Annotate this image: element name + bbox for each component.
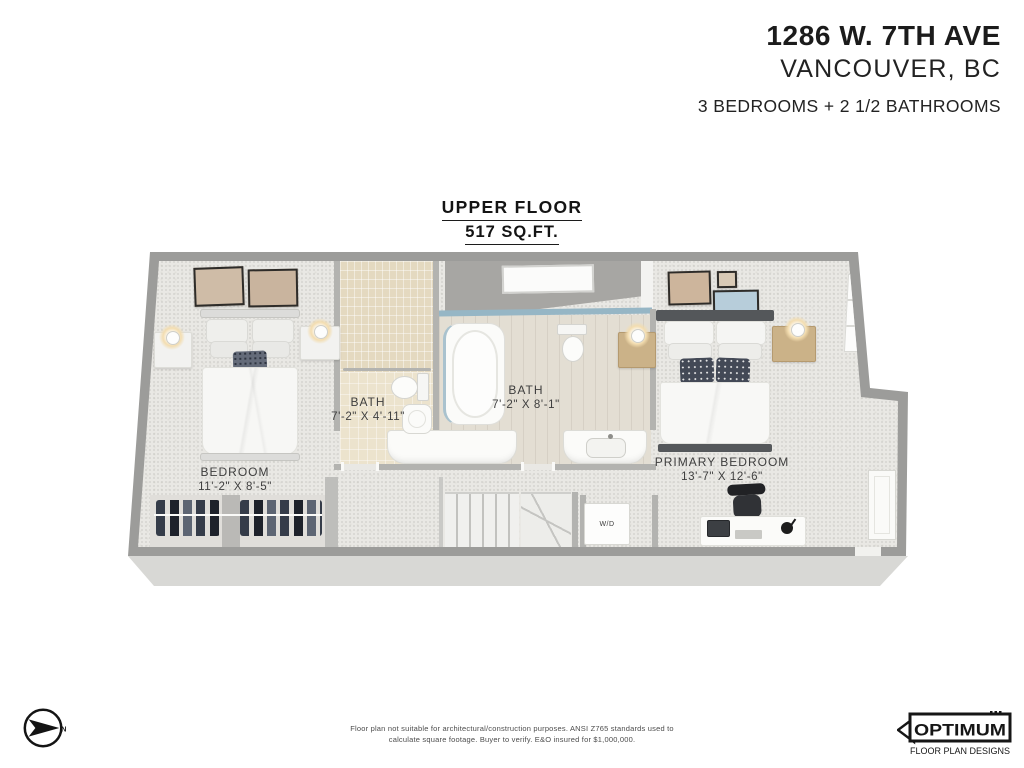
stair-railing bbox=[439, 477, 443, 547]
sink-vanity bbox=[563, 430, 647, 464]
sink-basin bbox=[586, 438, 626, 458]
wall-art-frame bbox=[248, 269, 299, 308]
floor-title: UPPER FLOOR 517 SQ.FT. bbox=[0, 197, 1024, 245]
desk bbox=[700, 516, 806, 546]
door-jamb bbox=[341, 462, 344, 471]
pillow bbox=[716, 321, 766, 345]
floor-plan: W/D BEDROOM 11'-2" X 8'-5" BATH 7'-2" X … bbox=[128, 252, 908, 586]
bed bbox=[656, 310, 774, 452]
door bbox=[868, 470, 896, 540]
footboard bbox=[200, 453, 300, 461]
optimum-logo: OPTIMUM FLOOR PLAN DESIGNS bbox=[897, 711, 1013, 757]
wall-segment bbox=[641, 261, 653, 312]
table-lamp bbox=[159, 324, 185, 350]
address-city: VANCOUVER, BC bbox=[698, 55, 1001, 84]
headboard bbox=[656, 310, 774, 321]
wall-segment bbox=[334, 464, 656, 470]
staircase-winder bbox=[521, 492, 571, 547]
beds-baths-summary: 3 BEDROOMS + 2 1/2 BATHROOMS bbox=[698, 96, 1001, 117]
wall-art-frame bbox=[193, 266, 244, 307]
skylight-window bbox=[502, 264, 594, 294]
bathroom-counter bbox=[387, 430, 517, 464]
washer-dryer-label: W/D bbox=[599, 521, 614, 528]
listing-header: 1286 W. 7TH AVE VANCOUVER, BC 3 BEDROOMS… bbox=[698, 20, 1001, 117]
footboard bbox=[658, 444, 772, 452]
toilet bbox=[562, 336, 584, 362]
door-jamb bbox=[552, 462, 555, 471]
bathtub-basin bbox=[452, 330, 498, 418]
sink-basin bbox=[408, 410, 426, 428]
wall-segment bbox=[652, 495, 658, 547]
wall-segment bbox=[433, 261, 439, 431]
accent-pillow bbox=[680, 357, 715, 383]
desk-lamp bbox=[781, 522, 793, 534]
wall-art-frame bbox=[717, 271, 737, 288]
duvet bbox=[660, 382, 770, 444]
pedestal-sink bbox=[402, 404, 432, 434]
room-label-primary-bedroom: PRIMARY BEDROOM 13'-7" X 12'-6" bbox=[655, 455, 790, 483]
table-lamp bbox=[784, 316, 810, 342]
closet-rod bbox=[154, 514, 322, 516]
room-label-bedroom: BEDROOM 11'-2" X 8'-5" bbox=[198, 465, 272, 493]
room-label-bath-main: BATH 7'-2" X 8'-1" bbox=[492, 383, 560, 411]
stair-divider-wall bbox=[572, 492, 578, 547]
pillow bbox=[206, 319, 248, 343]
shower-bar bbox=[343, 368, 431, 371]
disclaimer-text: Floor plan not suitable for architectura… bbox=[0, 723, 1024, 746]
floor-plan-page: 1286 W. 7TH AVE VANCOUVER, BC 3 BEDROOMS… bbox=[0, 0, 1024, 768]
door-jamb bbox=[521, 462, 524, 471]
monitor bbox=[707, 520, 730, 537]
table-lamp bbox=[307, 318, 333, 344]
toilet-tank bbox=[557, 324, 587, 335]
hanging-clothes bbox=[156, 500, 220, 536]
accent-pillow bbox=[716, 357, 751, 383]
toilet-tank bbox=[417, 373, 429, 401]
plan-interior: W/D BEDROOM 11'-2" X 8'-5" BATH 7'-2" X … bbox=[128, 252, 908, 586]
bed bbox=[200, 309, 300, 463]
table-lamp bbox=[624, 322, 650, 348]
door-opening bbox=[344, 464, 376, 470]
washer-dryer: W/D bbox=[584, 503, 630, 545]
staircase bbox=[445, 492, 519, 547]
closet-divider bbox=[222, 495, 240, 547]
pillow bbox=[664, 321, 714, 345]
keyboard bbox=[735, 530, 762, 539]
wall-art-frame bbox=[668, 270, 712, 305]
floor-name: UPPER FLOOR bbox=[442, 197, 583, 221]
room-label-bath-small: BATH 7'-2" X 4'-11" bbox=[331, 395, 405, 423]
wall-post bbox=[325, 477, 338, 547]
headboard bbox=[200, 309, 300, 318]
faucet bbox=[608, 434, 613, 439]
shower-tile-floor bbox=[340, 261, 434, 372]
duvet bbox=[202, 367, 298, 455]
door-jamb bbox=[376, 462, 379, 471]
door-threshold bbox=[855, 547, 881, 556]
floor-area: 517 SQ.FT. bbox=[465, 223, 558, 245]
svg-text:FLOOR PLAN DESIGNS: FLOOR PLAN DESIGNS bbox=[910, 746, 1010, 756]
hanging-clothes bbox=[240, 500, 322, 536]
door-opening bbox=[524, 464, 552, 470]
address-title: 1286 W. 7TH AVE bbox=[698, 20, 1001, 52]
pillow bbox=[252, 319, 294, 343]
svg-text:OPTIMUM: OPTIMUM bbox=[914, 721, 1006, 740]
